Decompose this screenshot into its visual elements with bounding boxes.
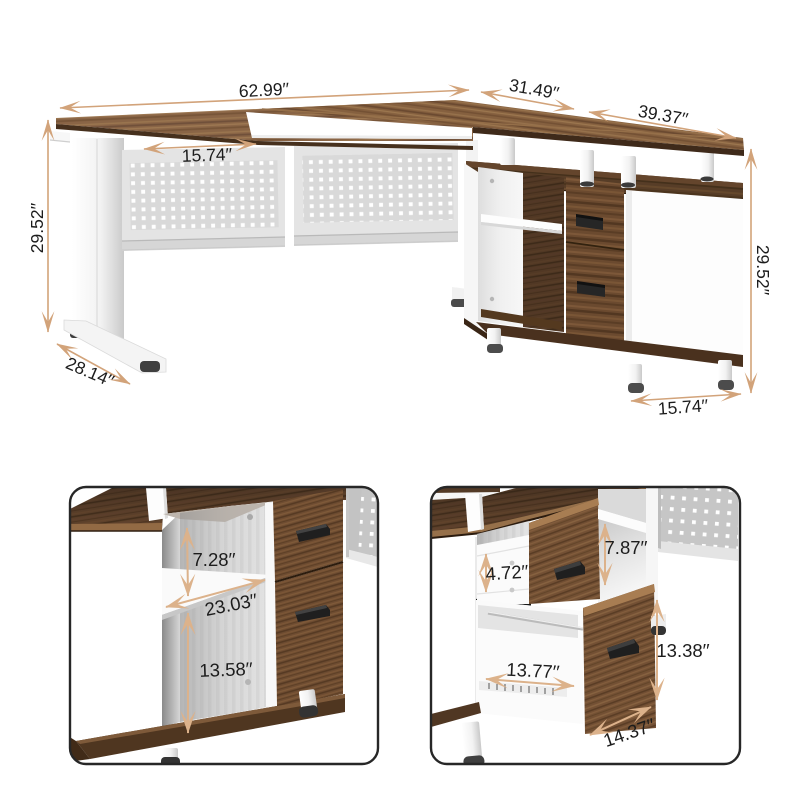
svg-text:15.74′′: 15.74′′ (181, 144, 232, 166)
svg-text:13.77′′: 13.77′′ (506, 659, 561, 683)
svg-text:15.74′′: 15.74′′ (657, 395, 709, 418)
svg-text:7.87′′: 7.87′′ (605, 537, 648, 558)
svg-text:29.52′′: 29.52′′ (27, 203, 47, 253)
svg-text:7.28′′: 7.28′′ (193, 549, 236, 570)
svg-text:4.72′′: 4.72′′ (485, 560, 530, 584)
svg-text:13.38′′: 13.38′′ (656, 640, 710, 661)
svg-text:62.99′′: 62.99′′ (238, 79, 289, 102)
svg-text:29.52′′: 29.52′′ (753, 245, 773, 295)
svg-text:13.58′′: 13.58′′ (199, 658, 253, 681)
